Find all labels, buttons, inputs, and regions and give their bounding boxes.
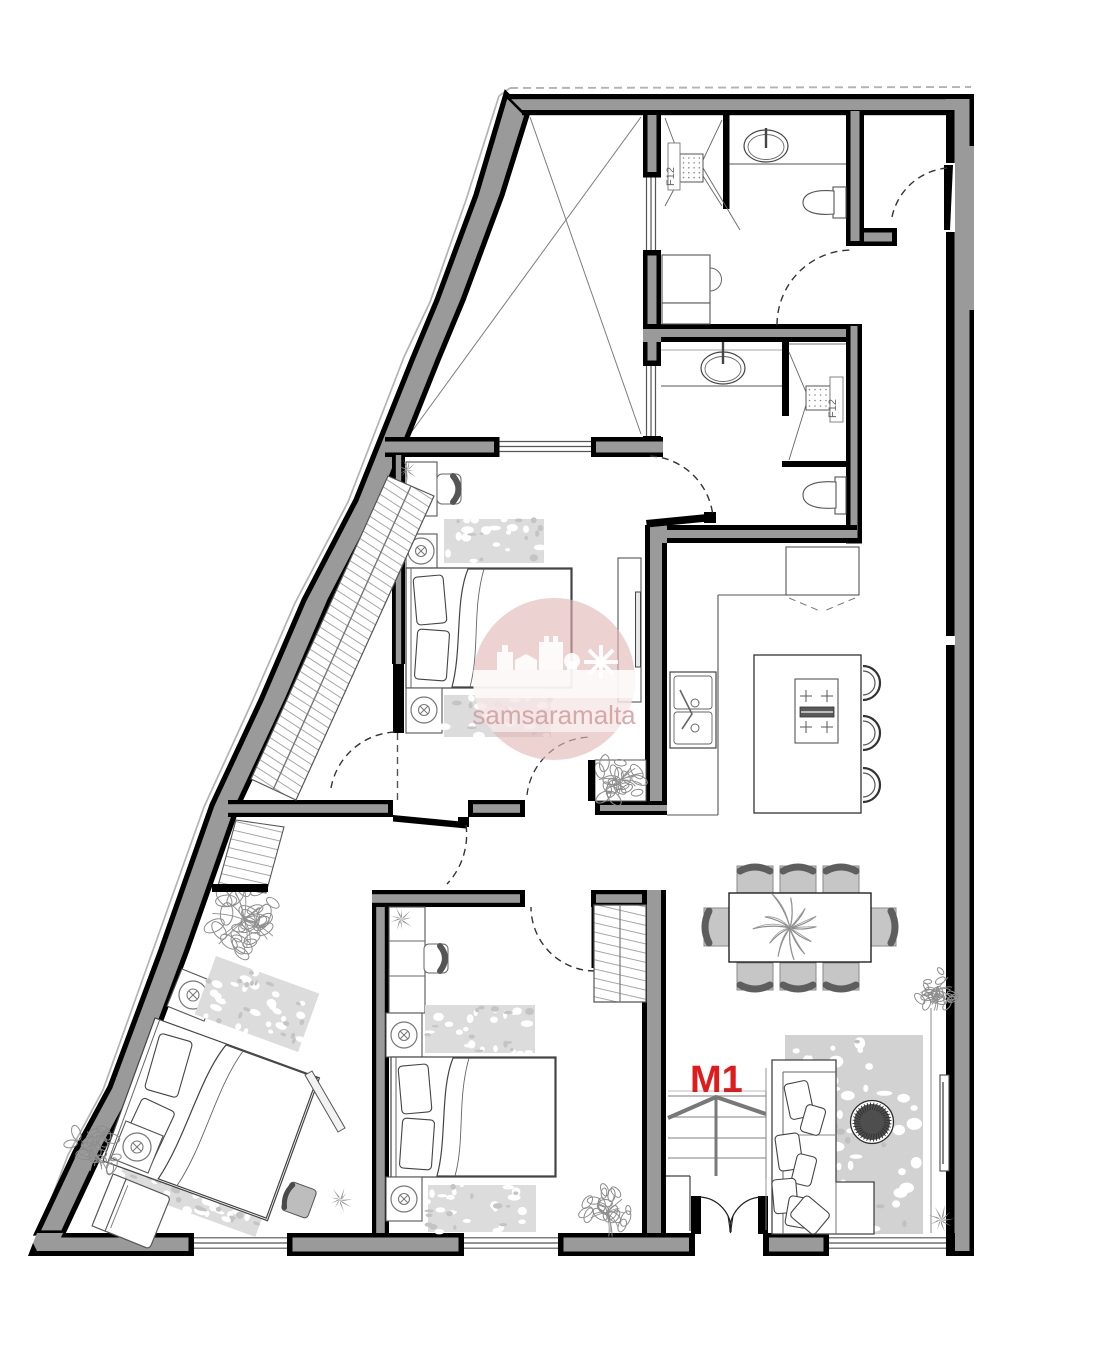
svg-text:F12: F12 xyxy=(665,167,677,186)
svg-text:samsaramalta: samsaramalta xyxy=(472,700,636,730)
svg-text:M1: M1 xyxy=(690,1059,743,1101)
svg-text:F12: F12 xyxy=(827,399,839,418)
